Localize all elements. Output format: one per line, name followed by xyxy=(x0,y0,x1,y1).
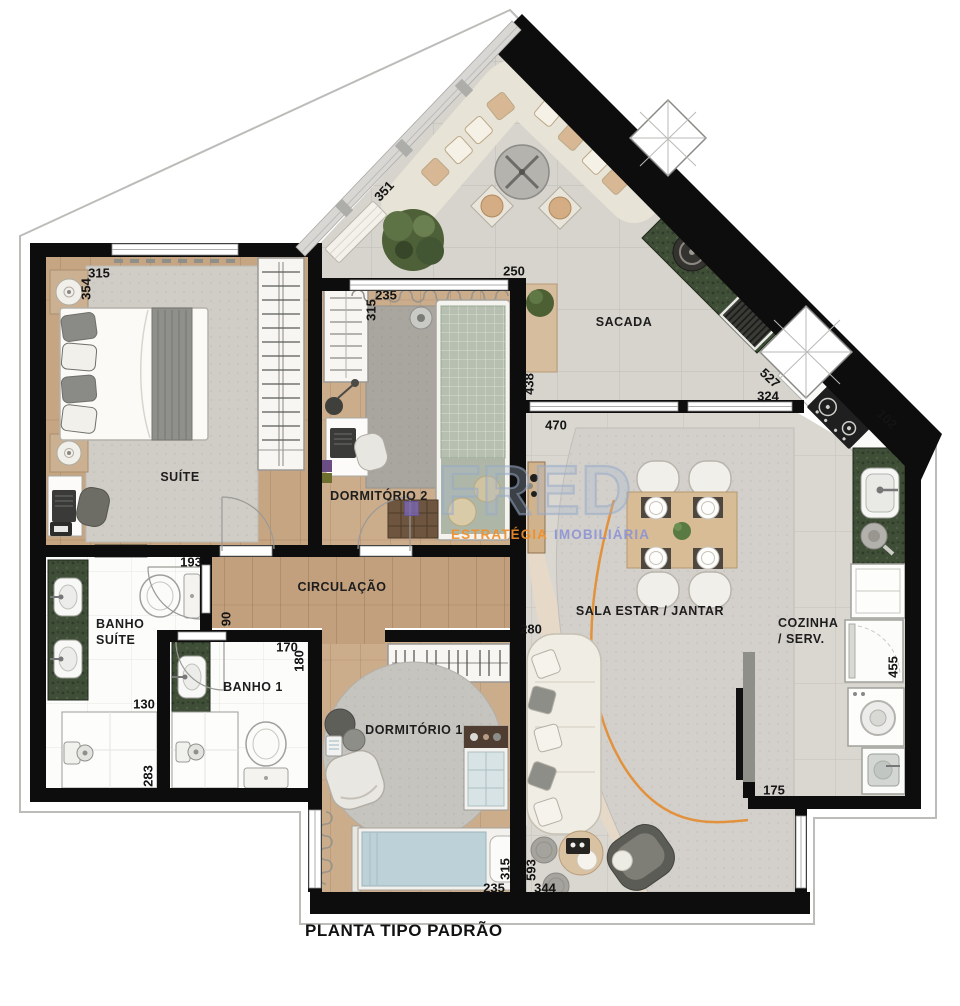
room-label-banho1: BANHO 1 xyxy=(223,680,283,696)
dim-dorm2-depth: 315 xyxy=(364,299,379,321)
room-label-suite: SUÍTE xyxy=(160,470,199,486)
room-label-dormitorio1: DORMITÓRIO 1 xyxy=(365,723,463,739)
room-label-banho-suite: BANHO SUÍTE xyxy=(96,617,144,648)
dim-banho-suite-width: 193 xyxy=(180,555,202,570)
dim-cozinha-depth: 455 xyxy=(886,656,901,678)
floor-plan-canvas: FRED ESTRATÉGIAIMOBILIÁRIA SUÍTE DORMITÓ… xyxy=(0,0,960,1006)
room-label-circulacao: CIRCULAÇÃO xyxy=(297,580,386,596)
dim-banho-suite-lower-width: 130 xyxy=(133,697,155,712)
dim-suite-depth: 354 xyxy=(79,278,94,300)
dim-dorm2-window: 250 xyxy=(503,264,525,279)
dim-banho1-depth: 180 xyxy=(292,650,307,672)
dim-sala-bottom-width: 344 xyxy=(534,881,556,896)
room-label-sacada: SACADA xyxy=(596,315,652,331)
dim-shower-depth: 283 xyxy=(141,765,156,787)
dim-cooktop-edge: 102 xyxy=(874,406,900,432)
room-label-cozinha: COZINHA / SERV. xyxy=(778,616,838,647)
plan-title: PLANTA TIPO PADRÃO xyxy=(305,921,503,941)
room-label-sala: SALA ESTAR / JANTAR xyxy=(576,604,724,620)
dim-sala-left: 280 xyxy=(520,622,542,637)
dim-cozinha-width: 175 xyxy=(763,783,785,798)
dim-sacada-right-width: 324 xyxy=(757,389,779,404)
dim-dorm1-width: 235 xyxy=(483,881,505,896)
dim-sacada-edge-right: 527 xyxy=(757,365,783,391)
dim-sala-depth: 593 xyxy=(524,859,539,881)
room-label-dormitorio2: DORMITÓRIO 2 xyxy=(330,489,428,505)
dim-sacada-edge-left: 351 xyxy=(371,178,397,204)
dim-circulacao-width: 90 xyxy=(219,612,234,626)
labels-layer: SUÍTE DORMITÓRIO 2 DORMITÓRIO 1 SACADA C… xyxy=(0,0,960,1006)
dim-sala-window: 470 xyxy=(545,418,567,433)
dim-sacada-left-depth: 438 xyxy=(522,373,537,395)
dim-dorm1-depth: 315 xyxy=(498,858,513,880)
